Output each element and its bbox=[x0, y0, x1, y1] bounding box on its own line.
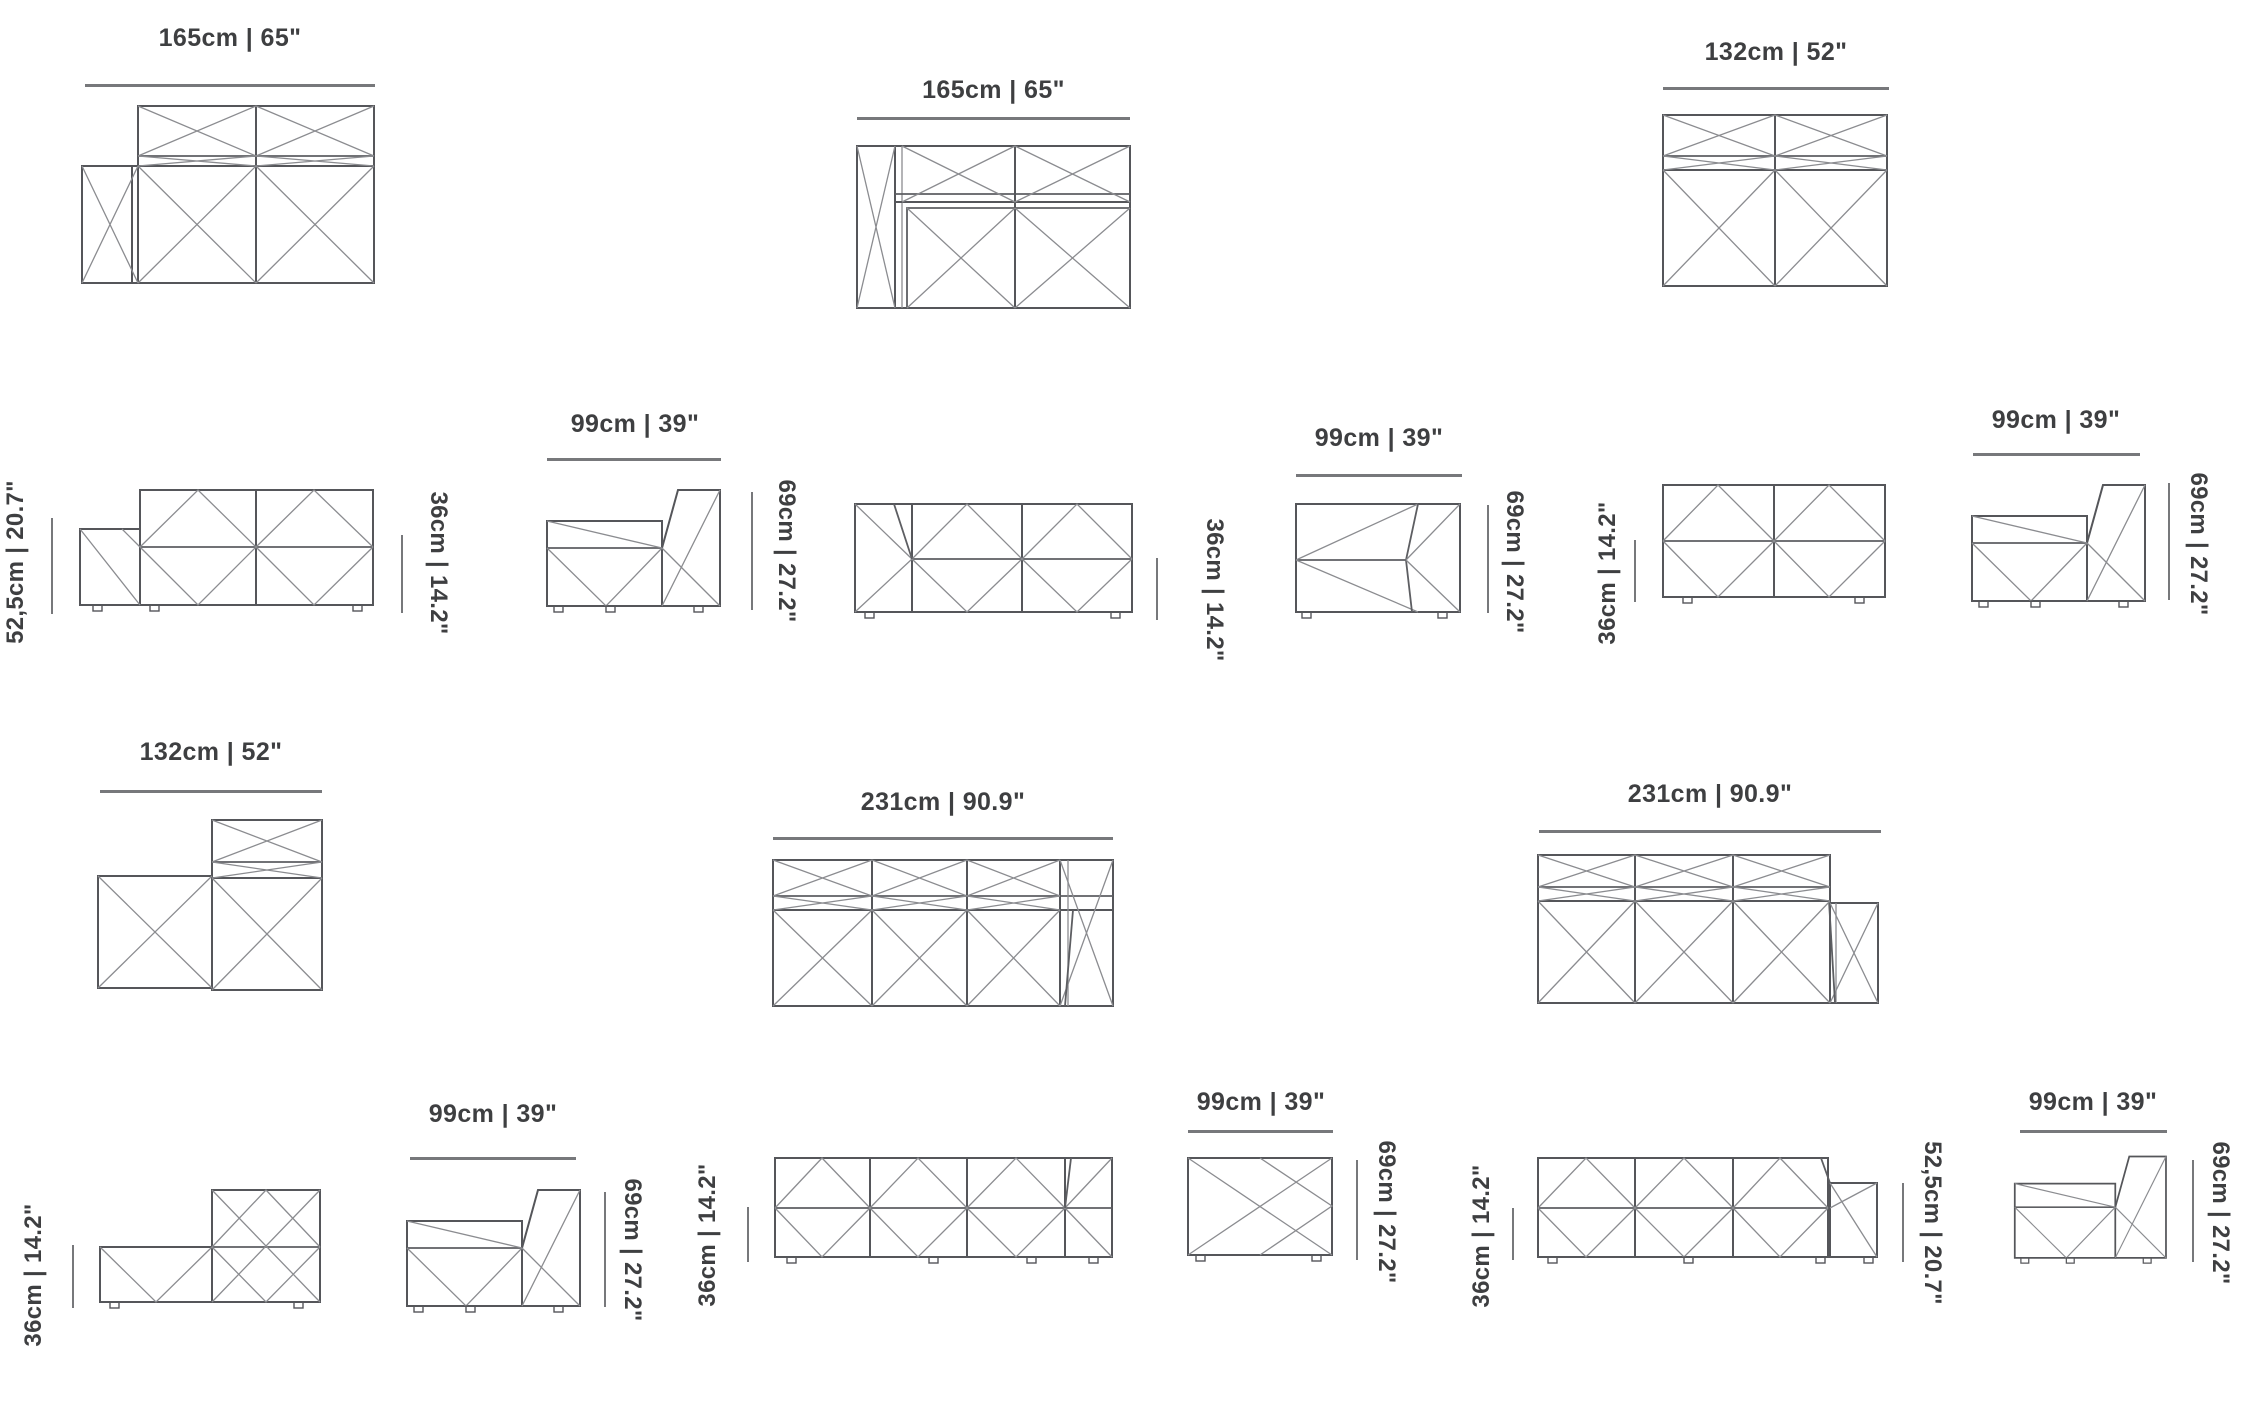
side-view-drawing bbox=[404, 1186, 589, 1313]
side-view-height-label: 69cm | 27.2" bbox=[2184, 472, 2212, 615]
side-view-width-label: 99cm | 39" bbox=[2018, 1088, 2168, 1117]
dimension-line bbox=[1902, 1183, 1904, 1262]
front-view-drawing bbox=[78, 487, 413, 614]
side-view-width-label: 99cm | 39" bbox=[1292, 424, 1466, 453]
dimension-line bbox=[410, 1157, 576, 1160]
dimension-line bbox=[1539, 830, 1881, 833]
dimension-line bbox=[604, 1192, 606, 1307]
top-view-width-label: 132cm | 52" bbox=[1663, 38, 1889, 67]
dimension-line bbox=[1487, 505, 1489, 613]
dimension-line bbox=[1356, 1160, 1358, 1260]
front-view-height-left-label: 52,5cm | 20.7" bbox=[2, 480, 30, 644]
top-view-drawing bbox=[96, 818, 326, 994]
dimension-line bbox=[1156, 558, 1158, 620]
dimension-line bbox=[547, 458, 721, 461]
front-view-height-right-label: 36cm | 14.2" bbox=[1200, 518, 1228, 661]
side-view-drawing bbox=[544, 486, 729, 613]
front-view-height-right-label: 52,5cm | 20.7" bbox=[1918, 1141, 1946, 1305]
dimension-line bbox=[751, 492, 753, 610]
side-view-width-label: 99cm | 39" bbox=[1186, 1088, 1336, 1117]
side-view-drawing bbox=[2012, 1153, 2174, 1264]
top-view-drawing bbox=[855, 144, 1132, 310]
front-view-drawing bbox=[1659, 482, 1889, 603]
side-view-height-label: 69cm | 27.2" bbox=[618, 1178, 646, 1321]
side-view-width-label: 99cm | 39" bbox=[1971, 406, 2141, 435]
dimension-line bbox=[857, 117, 1130, 120]
dimension-sheet: 165cm | 65" 52,5cm | 20.7" bbox=[0, 0, 2245, 1403]
dimension-line bbox=[2192, 1160, 2194, 1262]
top-view-width-label: 231cm | 90.9" bbox=[773, 788, 1113, 817]
front-view-drawing bbox=[769, 1155, 1115, 1267]
dimension-line bbox=[1663, 87, 1889, 90]
front-view-drawing bbox=[94, 1186, 324, 1308]
top-view-drawing bbox=[1536, 853, 1882, 1005]
top-view-width-label: 231cm | 90.9" bbox=[1539, 780, 1881, 809]
top-view-width-label: 165cm | 65" bbox=[857, 76, 1130, 105]
side-view-width-label: 99cm | 39" bbox=[548, 410, 722, 439]
side-view-height-label: 69cm | 27.2" bbox=[772, 479, 800, 622]
dimension-line bbox=[51, 518, 53, 614]
dimension-line bbox=[401, 535, 403, 613]
dimension-line bbox=[85, 84, 375, 87]
dimension-line bbox=[747, 1207, 749, 1262]
front-view-height-left-label: 36cm | 14.2" bbox=[1468, 1164, 1496, 1307]
dimension-line bbox=[2020, 1130, 2167, 1133]
dimension-line bbox=[2168, 483, 2170, 600]
dimension-line bbox=[1188, 1130, 1333, 1133]
top-view-drawing bbox=[80, 104, 376, 286]
front-view-drawing bbox=[1534, 1155, 1882, 1267]
front-view-height-left-label: 36cm | 14.2" bbox=[694, 1163, 722, 1306]
top-view-drawing bbox=[771, 858, 1115, 1008]
front-view-drawing bbox=[853, 502, 1135, 620]
front-view-height-left-label: 36cm | 14.2" bbox=[20, 1203, 48, 1346]
dimension-line bbox=[1296, 474, 1462, 477]
dimension-line bbox=[1512, 1208, 1514, 1260]
top-view-width-label: 132cm | 52" bbox=[100, 738, 322, 767]
side-view-height-label: 69cm | 27.2" bbox=[2206, 1141, 2234, 1284]
side-view-height-label: 69cm | 27.2" bbox=[1500, 490, 1528, 633]
top-view-drawing bbox=[1661, 113, 1891, 288]
dimension-line bbox=[773, 837, 1113, 840]
side-view-height-label: 69cm | 27.2" bbox=[1372, 1140, 1400, 1283]
side-view-drawing bbox=[1294, 502, 1466, 620]
dimension-line bbox=[100, 790, 322, 793]
front-view-height-right-label: 36cm | 14.2" bbox=[424, 491, 452, 634]
top-view-width-label: 165cm | 65" bbox=[85, 24, 375, 53]
side-view-width-label: 99cm | 39" bbox=[410, 1100, 576, 1129]
front-view-height-left-label: 36cm | 14.2" bbox=[1594, 501, 1622, 644]
dimension-line bbox=[72, 1245, 74, 1308]
dimension-line bbox=[1973, 453, 2140, 456]
side-view-drawing bbox=[1969, 481, 2154, 608]
side-view-drawing bbox=[1186, 1156, 1336, 1262]
dimension-line bbox=[1634, 540, 1636, 602]
